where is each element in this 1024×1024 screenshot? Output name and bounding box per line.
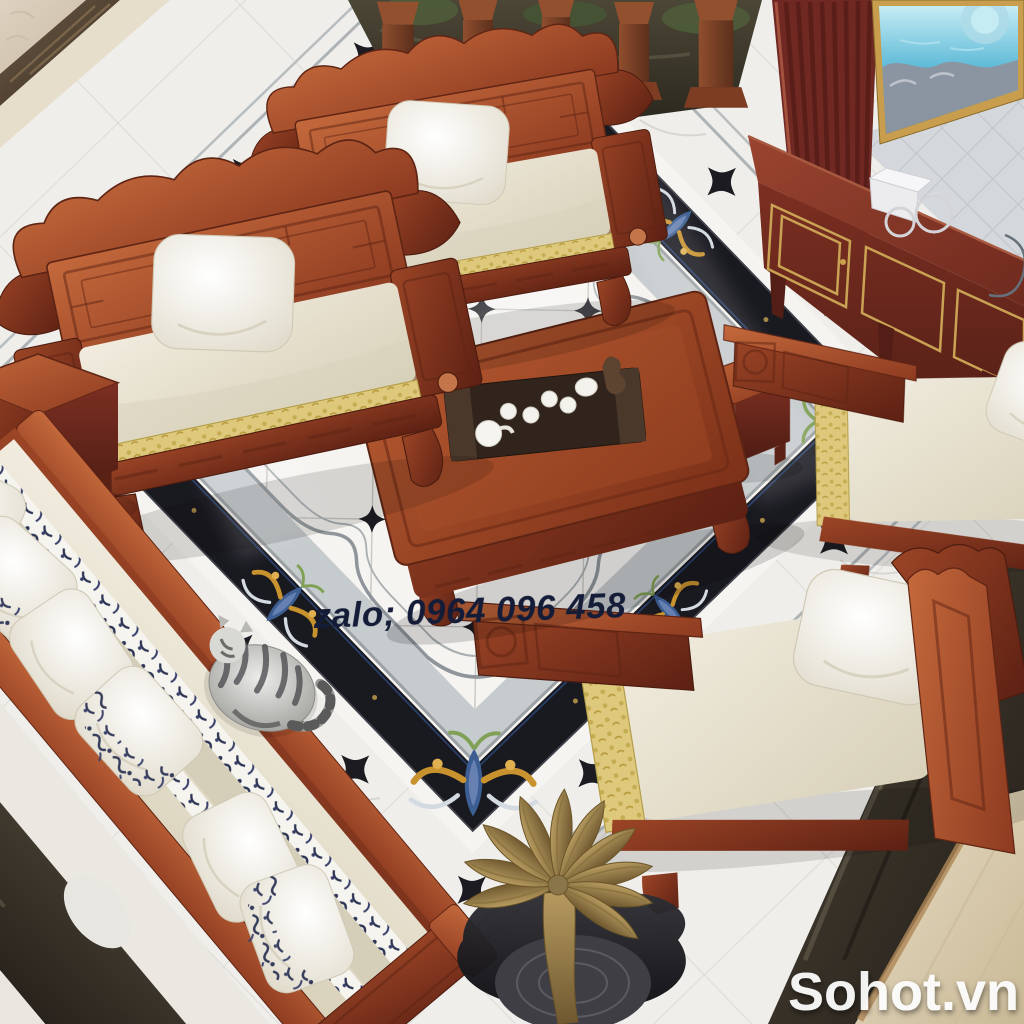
scene-canvas: zalo; 0964 096 458 Sohot.vn	[0, 0, 1024, 1024]
watermark-brand: Sohot.vn	[788, 962, 1019, 1022]
interior-render-scene: zalo; 0964 096 458 Sohot.vn	[0, 0, 1024, 1024]
